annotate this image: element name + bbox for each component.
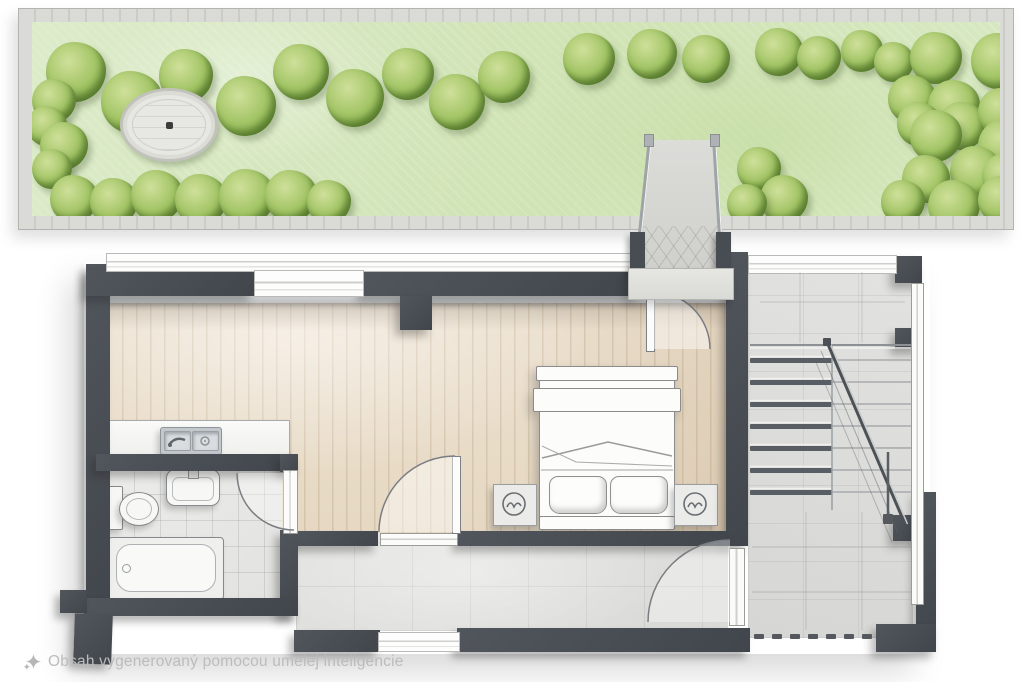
wall-pillar-top	[400, 296, 432, 330]
garden-bush	[682, 35, 730, 83]
wall-corner-se	[876, 624, 936, 652]
wall-bathroom-top	[96, 454, 298, 471]
walkway-post	[644, 134, 654, 147]
decor-swirl-icon	[675, 485, 715, 523]
faucet-icon	[165, 432, 190, 450]
pillow-left	[549, 476, 607, 514]
garden-bush	[755, 28, 803, 76]
hallway-floor	[296, 533, 728, 631]
garden-circular-plaza	[120, 88, 218, 162]
double-bed	[536, 366, 678, 530]
garden-bush	[478, 51, 530, 103]
wall-hall-right	[457, 531, 728, 546]
bathroom-basin	[166, 469, 220, 506]
garden-bush	[971, 33, 1000, 89]
wall-corner-pillar-ne	[895, 256, 922, 283]
bathtub	[108, 537, 224, 600]
wall-bathroom-bottom	[84, 598, 298, 616]
glazing-east	[911, 283, 924, 605]
wall-left	[86, 264, 110, 620]
bathroom-doorway	[283, 470, 298, 534]
floor-plan-page: Obsah vygenerovaný pomocou umelej inteli…	[0, 0, 1024, 682]
bathtub-basin	[116, 544, 216, 592]
garden-bush	[307, 180, 351, 216]
toilet-seat	[126, 498, 152, 520]
garden-bush	[797, 36, 841, 80]
entry-door-leaf	[646, 292, 655, 352]
garden-bush	[563, 33, 615, 85]
garden-bush	[216, 76, 276, 136]
window-band-top	[106, 253, 638, 272]
kitchen-sink	[160, 427, 222, 455]
livingroom-door-leaf	[452, 456, 461, 534]
window-top-1	[254, 270, 364, 297]
nightstand-right	[674, 484, 718, 526]
toilet-bowl	[119, 492, 159, 526]
sink-basin-right	[192, 431, 219, 451]
wall-hall-bottom-left	[294, 630, 380, 652]
garden-bush	[910, 110, 962, 162]
wall-top-b	[362, 270, 638, 296]
ai-sparkle-icon	[24, 654, 41, 671]
drain-icon	[193, 432, 218, 450]
garden-bush	[429, 74, 485, 130]
garden-bush	[760, 175, 808, 216]
garden-lawn	[32, 22, 1000, 216]
garden-bush	[881, 180, 925, 216]
garden-bush	[627, 29, 677, 79]
glazing-stairhall-top	[748, 255, 897, 274]
nightstand-left	[493, 484, 537, 526]
ai-watermark-text: Obsah vygenerovaný pomocou umelej inteli…	[48, 653, 404, 671]
terrace-doorway	[729, 548, 745, 626]
bed-headboard	[539, 516, 675, 530]
livingroom-door-threshold	[380, 533, 458, 546]
basin-bowl	[172, 477, 214, 501]
walkway-hatch-shadow	[634, 226, 728, 274]
wall-hall-bottom-right	[457, 628, 750, 652]
wall-top-a	[86, 270, 254, 296]
ai-watermark: Obsah vygenerovaný pomocou umelej inteli…	[24, 653, 404, 671]
window-bottom	[378, 632, 460, 652]
garden-bush	[382, 48, 434, 100]
pillow-right	[610, 476, 668, 514]
entry-porch-slab	[628, 268, 734, 300]
stair-hall-floor	[748, 270, 913, 638]
garden-plan	[18, 8, 1014, 230]
wall-stub-west	[60, 590, 87, 613]
garden-bush	[326, 69, 384, 127]
decor-swirl-icon	[494, 485, 534, 523]
bathtub-drain-icon	[122, 564, 131, 573]
wall-hall-left	[296, 531, 378, 546]
plaza-center-marker	[166, 122, 173, 129]
sink-basin-left	[164, 431, 191, 451]
walkway-post	[710, 134, 720, 147]
garden-bush	[273, 44, 329, 100]
